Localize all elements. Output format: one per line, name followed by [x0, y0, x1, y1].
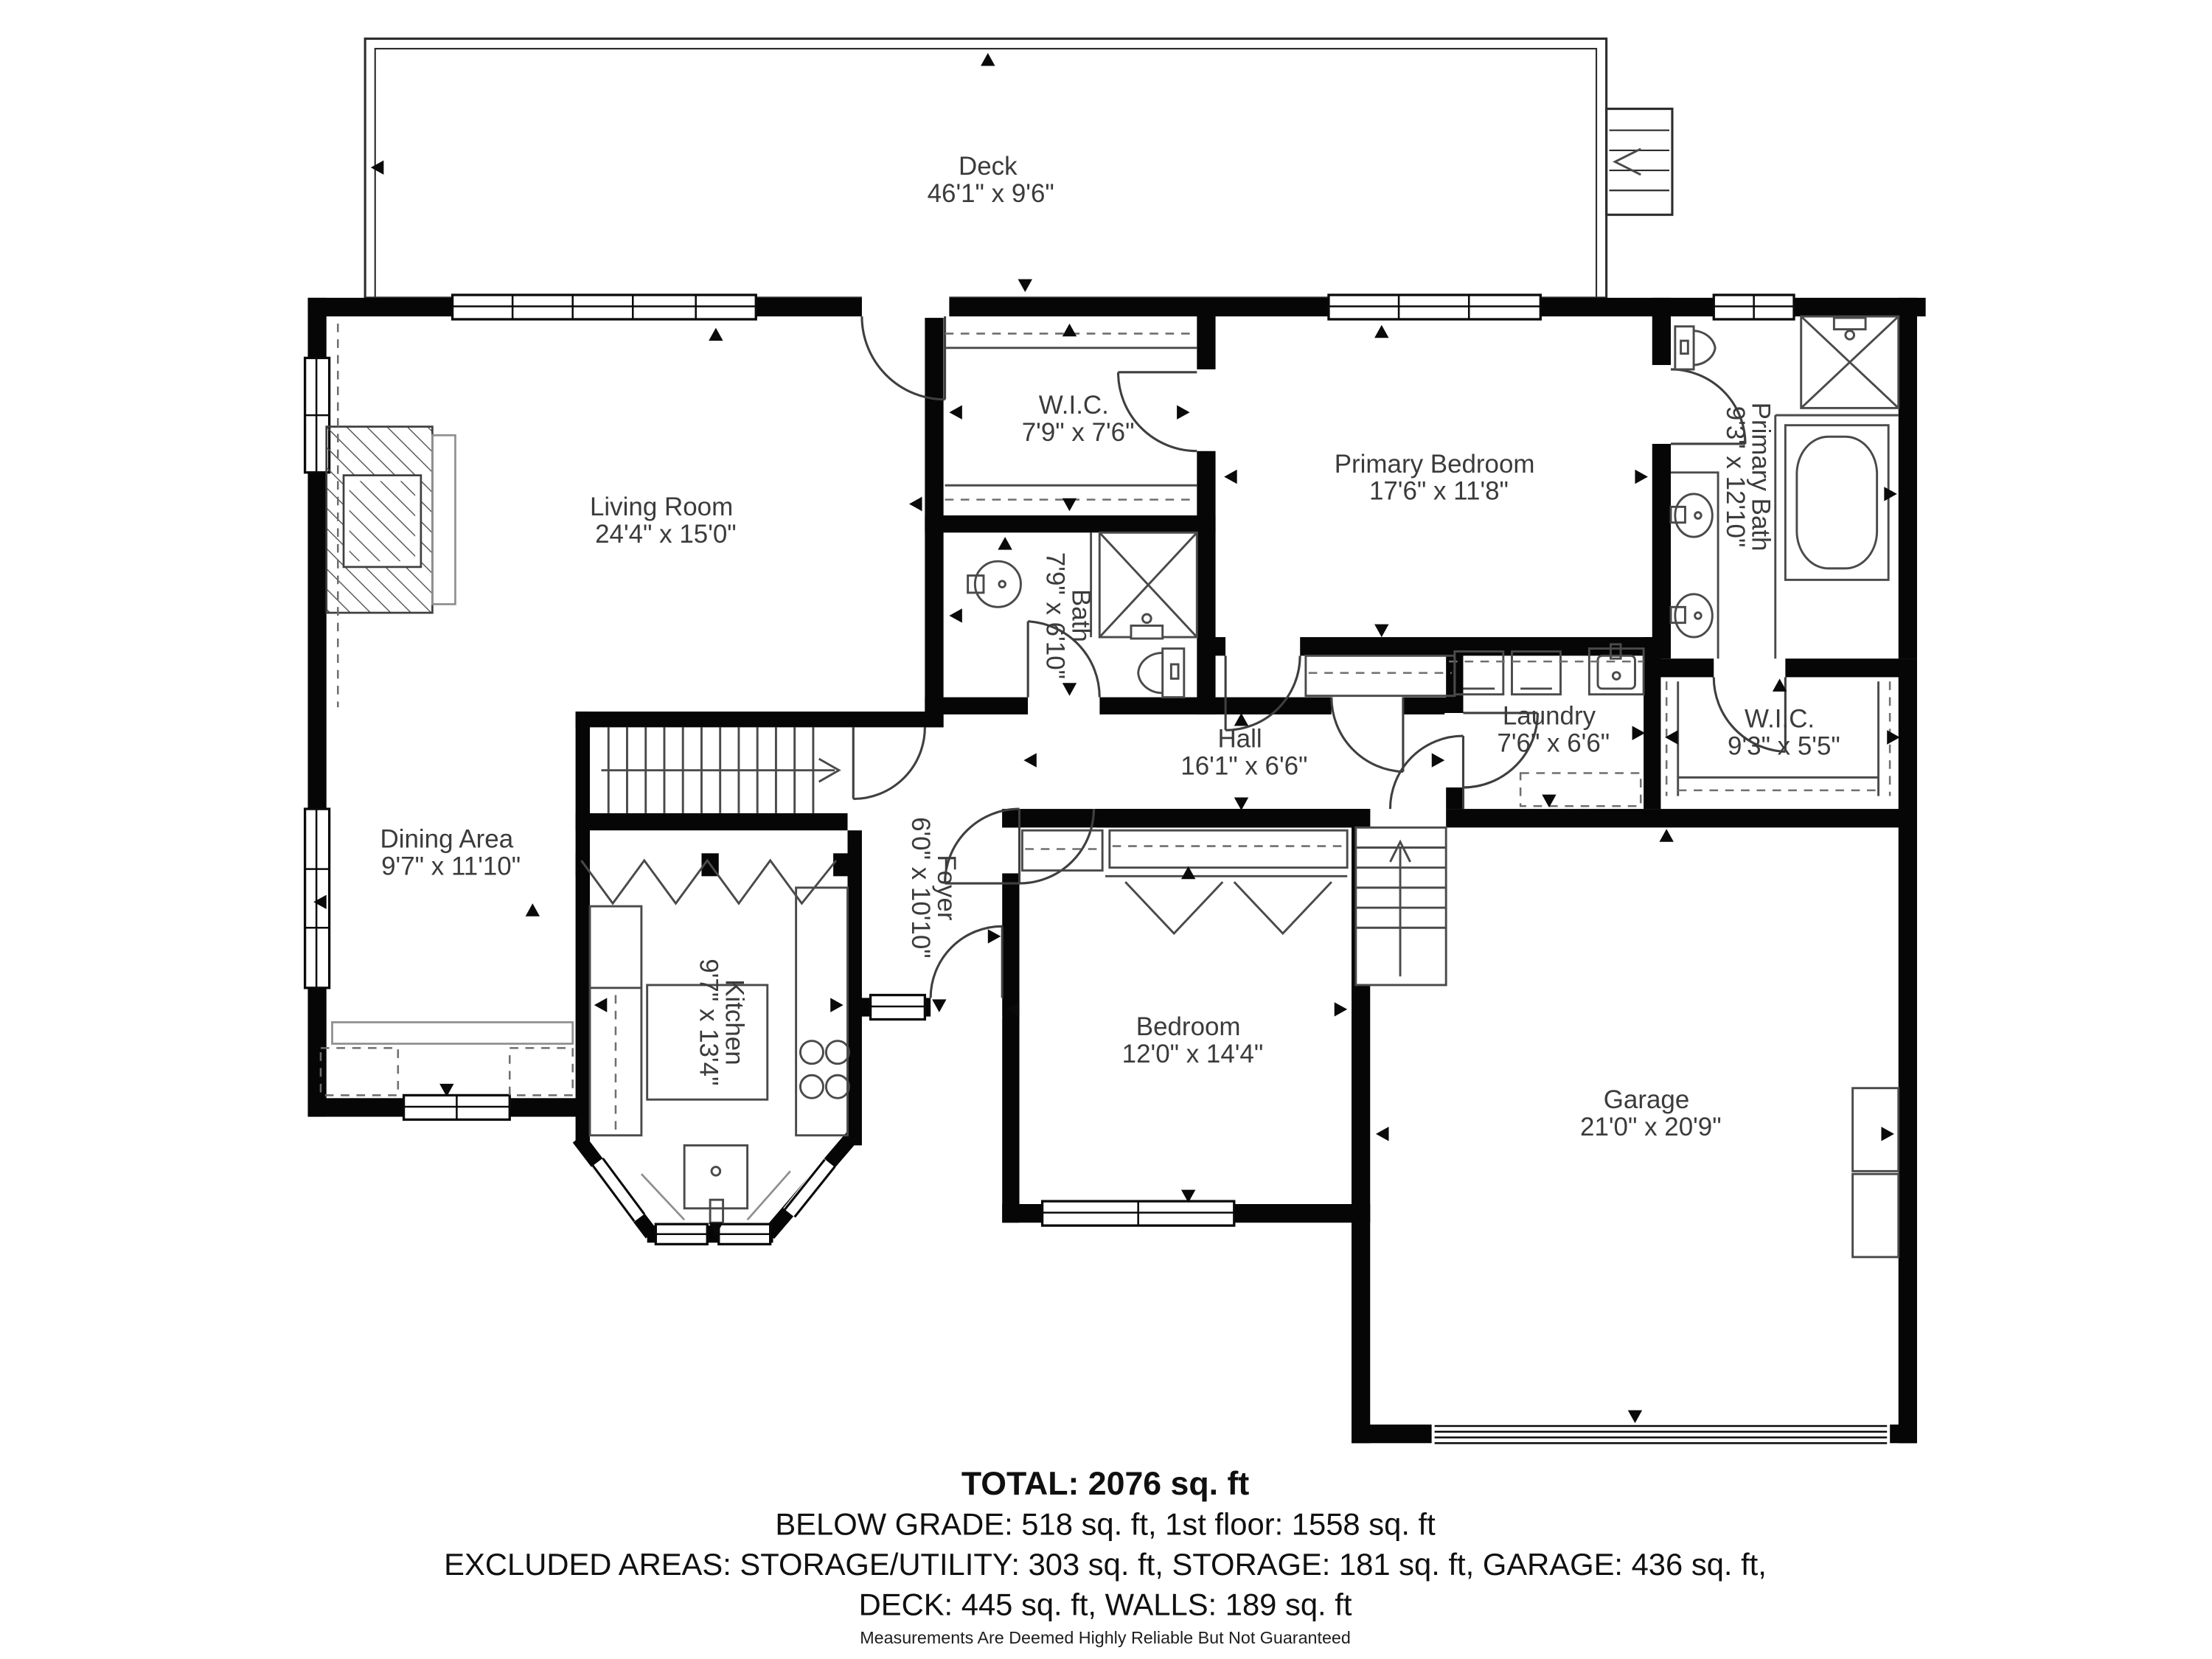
- primary-toilet: [1675, 327, 1715, 369]
- window-bay-right: [785, 1160, 835, 1217]
- laundry-storage: [1520, 773, 1641, 807]
- window-living-top: [453, 295, 757, 319]
- bathtub: [1775, 415, 1899, 658]
- summary-line2: BELOW GRADE: 518 sq. ft, 1st floor: 1558…: [775, 1507, 1436, 1542]
- primary-sink-1: [1671, 494, 1712, 537]
- area-summary: TOTAL: 2076 sq. ft BELOW GRADE: 518 sq. …: [444, 1466, 1767, 1647]
- summary-line3: EXCLUDED AREAS: STORAGE/UTILITY: 303 sq.…: [444, 1547, 1767, 1582]
- primary-vanity: [1671, 473, 1718, 658]
- stove: [800, 1041, 849, 1099]
- closet-door-chevron: [1234, 882, 1332, 933]
- room-dims-kitchen: 9'7" x 13'4": [695, 959, 723, 1085]
- foyer-closet: [1022, 830, 1102, 870]
- room-label-wic2: W.I.C.: [1745, 704, 1815, 733]
- room-label-bath: Bath: [1066, 589, 1095, 642]
- summary-total: TOTAL: 2076 sq. ft: [961, 1466, 1250, 1502]
- kitchen-sink: [684, 1145, 747, 1222]
- window-primary-bath-top: [1714, 295, 1794, 319]
- fireplace: [327, 427, 456, 613]
- stairs: [602, 727, 839, 813]
- floor-plan-page: Deck 46'1" x 9'6" Living Room 24'4" x 15…: [0, 0, 2212, 1659]
- room-label-primary-bedroom: Primary Bedroom: [1335, 450, 1535, 479]
- window-dining-bottom: [404, 1095, 510, 1119]
- summary-line4: DECK: 445 sq. ft, WALLS: 189 sq. ft: [859, 1587, 1352, 1621]
- garage-door: [1432, 1423, 1890, 1444]
- room-label-foyer: Foyer: [932, 855, 961, 921]
- primary-bath-fixtures: [1671, 316, 1899, 658]
- room-label-kitchen: Kitchen: [720, 979, 748, 1065]
- room-label-deck: Deck: [959, 152, 1018, 181]
- garage-shelves: [1853, 1088, 1899, 1257]
- room-dims-wic2: 9'3" x 5'5": [1728, 731, 1840, 760]
- room-dims-bath: 7'9" x 6'10": [1040, 552, 1069, 679]
- kitchen-counter-left: [590, 906, 641, 1135]
- stairs-door-arc: [853, 727, 925, 799]
- room-label-bedroom: Bedroom: [1136, 1012, 1241, 1041]
- room-dims-foyer: 6'0" x 10'10": [906, 817, 935, 959]
- room-dims-hall: 16'1" x 6'6": [1180, 751, 1307, 780]
- garage-steps: [1356, 827, 1446, 985]
- room-dims-wic1: 7'9" x 7'6": [1022, 418, 1135, 447]
- room-label-hall: Hall: [1217, 725, 1262, 754]
- room-dims-primary-bath: 9'3" x 12'10": [1721, 406, 1750, 548]
- room-label-laundry: Laundry: [1503, 702, 1596, 731]
- room-label-dining: Dining Area: [380, 825, 514, 854]
- room-dims-primary-bedroom: 17'6" x 11'8": [1369, 477, 1509, 506]
- hall-closet: [1306, 655, 1455, 695]
- bath-sink: [968, 561, 1021, 607]
- primary-sink-2: [1671, 594, 1712, 637]
- window-foyer-front: [871, 995, 925, 1020]
- window-primary-bedroom-top: [1329, 295, 1540, 319]
- primary-bedroom-door-arc: [1225, 655, 1300, 730]
- window-bedroom-bottom: [1043, 1201, 1234, 1225]
- primary-shower: [1801, 316, 1899, 408]
- room-label-living-room: Living Room: [590, 493, 733, 521]
- room-label-wic1: W.I.C.: [1039, 391, 1109, 420]
- room-label-garage: Garage: [1604, 1085, 1690, 1114]
- window-bay-left: [593, 1158, 644, 1221]
- room-dims-living-room: 24'4" x 15'0": [595, 520, 737, 549]
- shower: [1099, 532, 1197, 639]
- room-dims-laundry: 7'6" x 6'6": [1497, 728, 1610, 757]
- floor-plan-drawing: Deck 46'1" x 9'6" Living Room 24'4" x 15…: [0, 0, 2212, 1659]
- bath-toilet: [1138, 649, 1184, 698]
- room-label-primary-bath: Primary Bath: [1747, 403, 1775, 552]
- deck-outline: [365, 38, 1672, 297]
- room-dims-deck: 46'1" x 9'6": [928, 179, 1054, 208]
- bedroom-closet: [1105, 830, 1347, 933]
- room-dims-garage: 21'0" x 20'9": [1580, 1113, 1722, 1141]
- walls: [307, 298, 1925, 1443]
- summary-disclaimer: Measurements Are Deemed Highly Reliable …: [860, 1628, 1351, 1647]
- room-dims-bedroom: 12'0" x 14'4": [1122, 1040, 1264, 1068]
- closet-door-chevron: [1125, 882, 1222, 933]
- room-dims-dining: 9'7" x 11'10": [381, 852, 521, 880]
